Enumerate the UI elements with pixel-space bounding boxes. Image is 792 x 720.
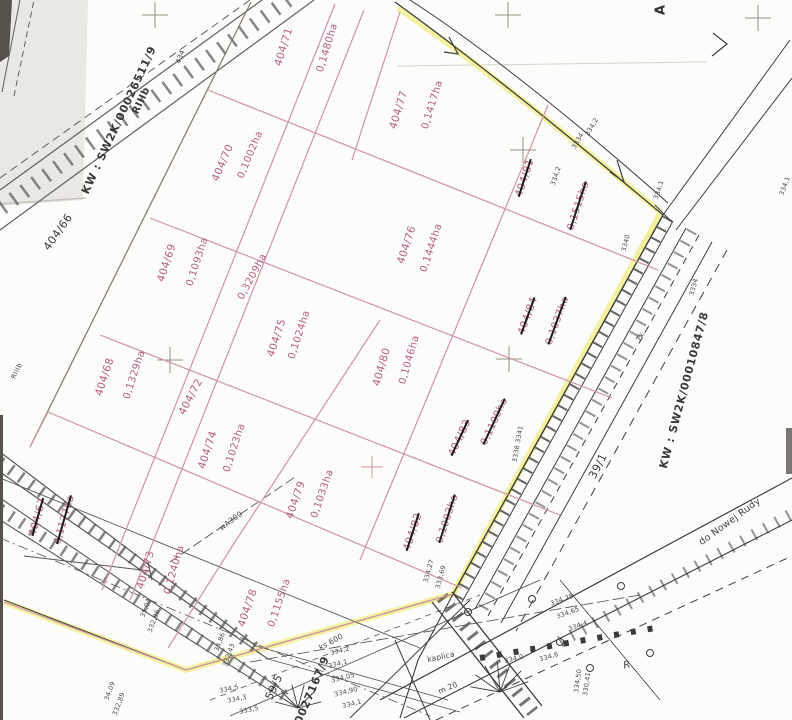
road-top <box>395 0 792 230</box>
north-a-mark: A <box>655 5 668 15</box>
survey-grid-crosses <box>142 2 771 373</box>
boundary-highlight <box>4 8 660 670</box>
pink-cross <box>361 456 383 478</box>
cadastral-map: 404/71 0,1480ha 404/70 0,1002ha 404/77 0… <box>0 0 792 720</box>
parcel-grid <box>4 2 658 670</box>
